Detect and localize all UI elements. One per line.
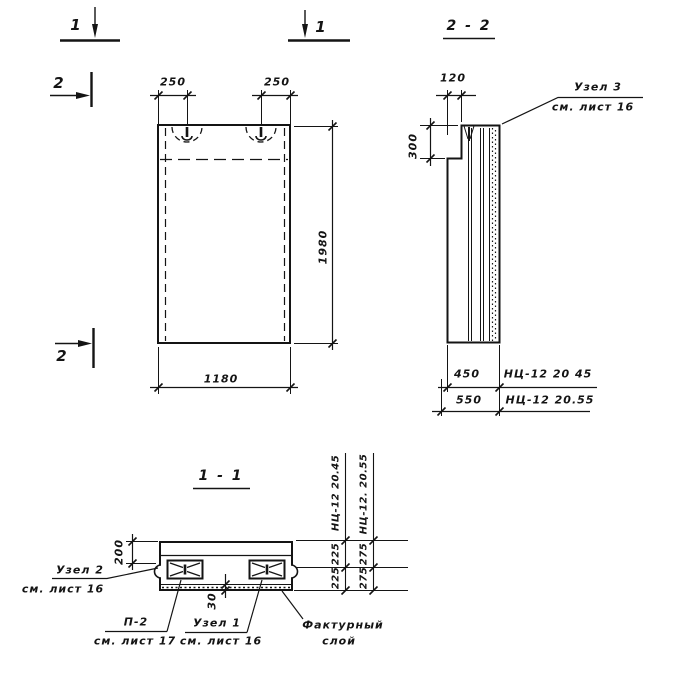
front-view-outline: [158, 125, 290, 343]
lifting-loop-left: [172, 127, 202, 142]
dim-1180: 1180: [204, 373, 239, 386]
marker-2-top-label: 2: [53, 74, 64, 92]
p2-callout-line2: см. лист 17: [94, 635, 176, 648]
p2-callout-line1: П-2: [124, 616, 148, 629]
facing-callout-line2: слой: [322, 635, 356, 648]
lifting-loop-right: [246, 127, 276, 142]
edge-notch-left: [155, 565, 164, 578]
table-dim-225-top: 225: [331, 543, 342, 565]
dim-550: 550: [456, 394, 482, 407]
table-mark-col1: НЦ-12 20.45: [331, 455, 342, 531]
table-dim-275-bottom: 275: [359, 567, 370, 589]
front-view-dim-1180: [150, 347, 298, 394]
dim-300: 300: [407, 133, 420, 159]
dim-30: 30: [206, 592, 219, 609]
section-line-1-left-marker: [60, 7, 120, 41]
dim-450: 450: [454, 368, 480, 381]
marker-1-right-label: 1: [315, 18, 326, 36]
section-1-1-variant-table: [294, 453, 408, 595]
section-1-1-dim-200: [126, 534, 158, 570]
node3-callout-line1: Узел 3: [574, 81, 622, 94]
table-mark-col2: НЦ-12. 20.55: [359, 454, 370, 535]
front-view-dim-250-right: [252, 90, 298, 126]
section-2-2-title: 2 - 2: [446, 18, 491, 34]
node3-callout-line2: см. лист 16: [552, 101, 634, 114]
mark-nc-12-20-55: НЦ-12 20.55: [506, 394, 595, 407]
node2-callout-line1: Узел 2: [56, 564, 104, 577]
marker-2-bottom-label: 2: [56, 347, 67, 365]
node1-callout-line1: Узел 1: [193, 617, 241, 630]
front-view-dim-250-left: [150, 90, 196, 126]
table-dim-275-top: 275: [359, 543, 370, 565]
table-dim-225-bottom: 225: [331, 567, 342, 589]
dim-1980: 1980: [317, 230, 330, 265]
drawing-sheet: 1 1 2 2 250 250 1980 1180 2 - 2 120 300 …: [0, 0, 700, 700]
marker-1-left-label: 1: [70, 16, 81, 34]
keyway-right: [250, 561, 285, 579]
dim-120: 120: [440, 72, 466, 85]
dim-200: 200: [113, 539, 126, 565]
keyway-left: [168, 561, 203, 579]
facing-callout-line1: Фактурный: [302, 619, 383, 632]
node1-callout-line2: см. лист 16: [180, 635, 262, 648]
node2-callout-line2: см. лист 16: [22, 583, 104, 596]
facing-layer-leader: [282, 591, 303, 619]
front-view-hidden-lines: [160, 128, 288, 341]
dim-250-left: 250: [160, 76, 186, 89]
section-1-1-title: 1 - 1: [198, 468, 243, 484]
section-1-1-dim-30: [222, 574, 230, 598]
section-2-2-profile: [448, 126, 500, 343]
dim-250-right: 250: [264, 76, 290, 89]
mark-nc-12-20-45: НЦ-12 20 45: [504, 368, 593, 381]
